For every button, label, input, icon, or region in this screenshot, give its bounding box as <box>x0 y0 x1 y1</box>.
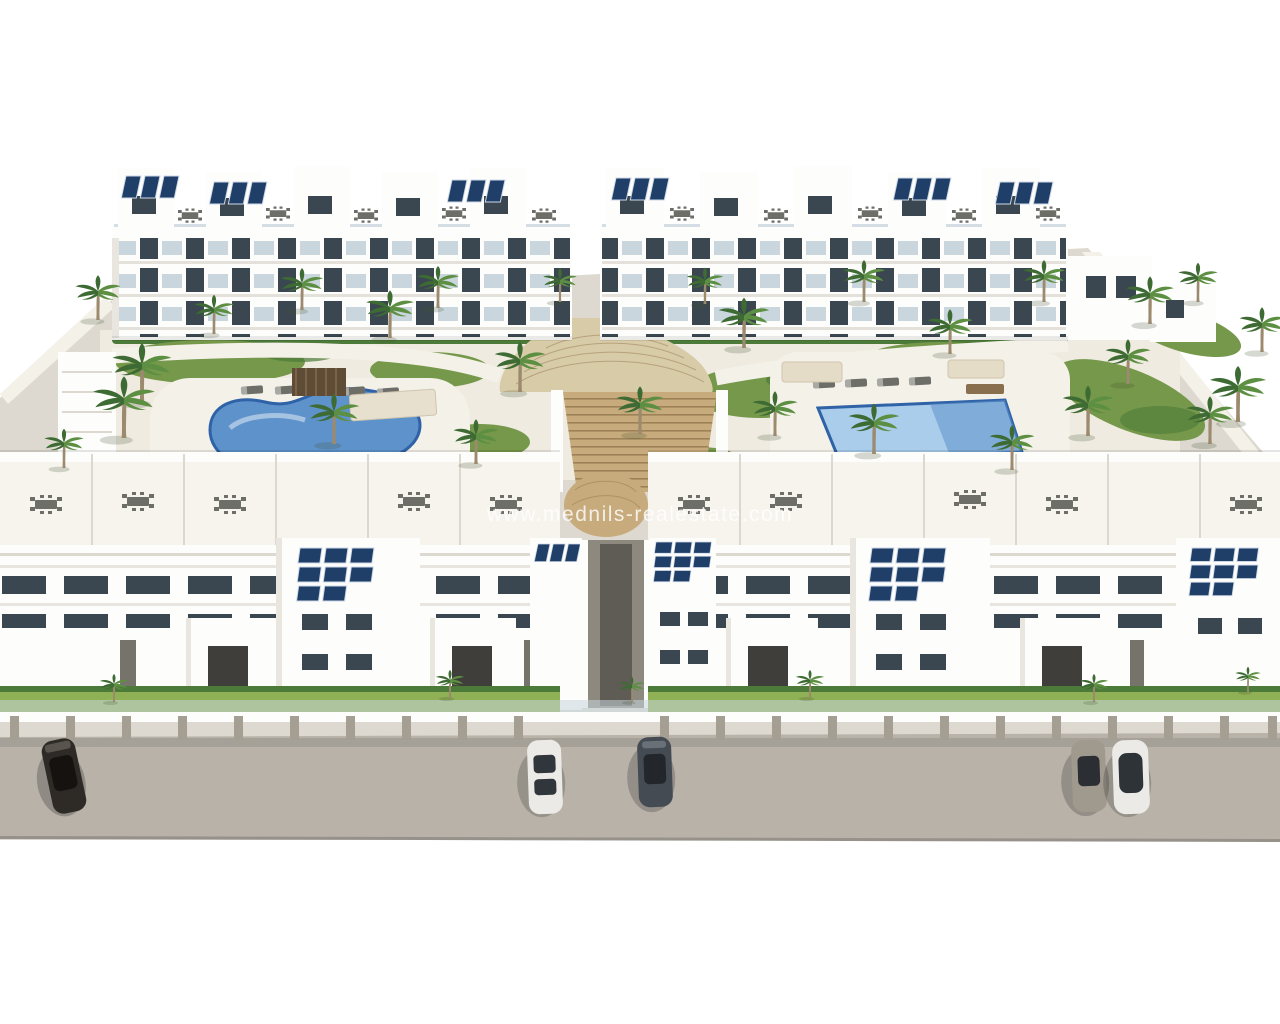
pergola-canopy <box>782 362 842 382</box>
architectural-render: www.mednils-realestate.com <box>0 0 1280 1024</box>
solar-panels-icon <box>611 178 669 200</box>
tower <box>850 538 990 708</box>
solar-panels-icon <box>209 182 267 204</box>
solar-panels-icon <box>534 544 580 562</box>
pergola-canopy <box>349 389 437 421</box>
watermark-text: www.mednils-realestate.com <box>486 503 793 526</box>
solar-panels-icon <box>995 182 1053 204</box>
pergola-dark <box>292 368 346 396</box>
garage-door <box>208 646 248 692</box>
solar-panels-icon <box>447 180 505 202</box>
garage-door <box>748 646 788 692</box>
garage-door <box>1042 646 1082 692</box>
front-building-right <box>648 450 1280 714</box>
pergola-canopy <box>948 360 1004 378</box>
render-scene: www.mednils-realestate.com <box>0 0 1280 1024</box>
solar-panels-icon <box>893 178 951 200</box>
tower <box>276 538 420 708</box>
tower <box>1176 538 1280 708</box>
bench <box>966 384 1004 394</box>
center-passage <box>530 538 716 710</box>
solar-panels-icon <box>121 176 179 198</box>
front-building-left <box>0 450 560 714</box>
